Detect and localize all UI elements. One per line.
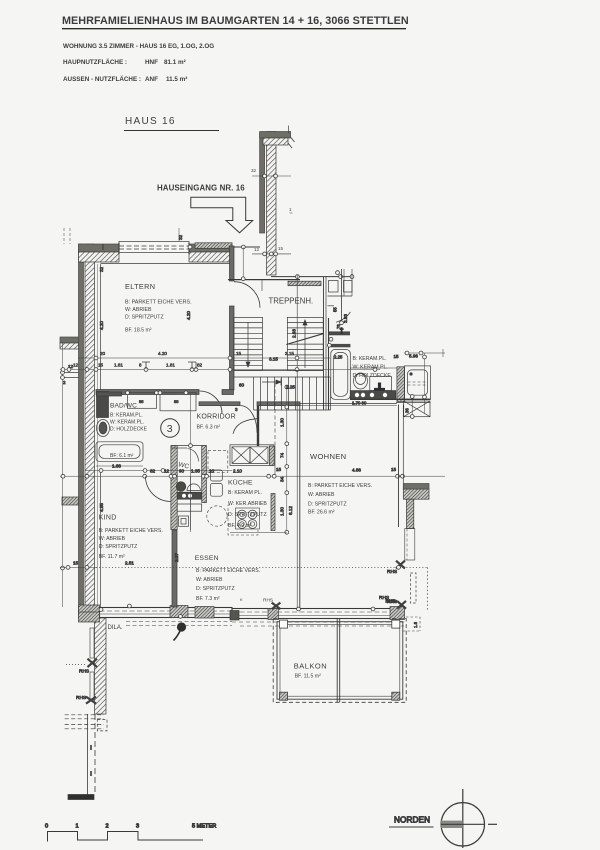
- svg-text:BF. 26.6 m²: BF. 26.6 m²: [308, 510, 335, 516]
- svg-text:BF. 11.5 m²: BF. 11.5 m²: [295, 674, 321, 680]
- svg-text:B: PARKETT EICHE VERS.: B: PARKETT EICHE VERS.: [99, 528, 163, 534]
- svg-text:W: ABRIEB: W: ABRIEB: [125, 307, 152, 313]
- svg-text:4.20: 4.20: [186, 311, 191, 320]
- svg-text:1: 1: [76, 824, 79, 830]
- svg-text:3: 3: [167, 423, 173, 435]
- svg-text:KIND: KIND: [99, 515, 117, 522]
- svg-text:RHS: RHS: [386, 599, 396, 605]
- svg-text:3: 3: [136, 824, 139, 830]
- svg-text:B: KERAM PL.: B: KERAM PL.: [228, 490, 262, 496]
- svg-text:12: 12: [164, 469, 170, 474]
- svg-text:1.6: 1.6: [413, 621, 418, 628]
- svg-text:ELTERN: ELTERN: [125, 282, 155, 291]
- svg-text:8: 8: [139, 363, 142, 368]
- svg-text:2.25: 2.25: [334, 355, 343, 360]
- svg-text:HAUPNUTZFLÄCHE :: HAUPNUTZFLÄCHE :: [63, 58, 127, 66]
- svg-text:RHS: RHS: [263, 598, 273, 604]
- svg-text:KÜCHE: KÜCHE: [228, 479, 253, 487]
- svg-text:1: 1: [289, 207, 292, 212]
- svg-text:WOHNUNG 3.5 ZIMMER - HAUS 16: WOHNUNG 3.5 ZIMMER - HAUS 16 EG, 1.OG, 2…: [63, 43, 214, 50]
- svg-text:DILA.: DILA.: [108, 625, 123, 631]
- svg-text:36: 36: [405, 408, 410, 413]
- svg-text:W: KER.ABRIEB: W: KER.ABRIEB: [228, 501, 267, 507]
- svg-text:TREPPENH.: TREPPENH.: [269, 297, 314, 306]
- svg-text:20: 20: [100, 351, 106, 356]
- svg-text:1.30: 1.30: [279, 507, 284, 516]
- svg-text:AUSSEN - NUTZFLÄCHE :: AUSSEN - NUTZFLÄCHE :: [63, 75, 141, 83]
- svg-text:D: SPRITZPUTZ: D: SPRITZPUTZ: [99, 544, 138, 550]
- svg-text:32: 32: [251, 168, 257, 173]
- svg-text:4.20: 4.20: [99, 321, 104, 330]
- svg-text:81.1 m²: 81.1 m²: [164, 59, 186, 66]
- svg-text:6.12: 6.12: [288, 506, 293, 515]
- svg-text:15: 15: [394, 354, 400, 359]
- svg-text:BF. 18.5 m²: BF. 18.5 m²: [125, 328, 152, 334]
- svg-text:4.20: 4.20: [158, 351, 167, 356]
- svg-text:D: SPRITZPUTZ: D: SPRITZPUTZ: [196, 586, 235, 592]
- svg-text:B: KERAM.PL.: B: KERAM.PL.: [110, 413, 143, 419]
- svg-text:2.25: 2.25: [286, 385, 295, 390]
- svg-text:ANF: ANF: [145, 76, 158, 83]
- svg-text:D: HOLZDECKE: D: HOLZDECKE: [110, 427, 148, 433]
- svg-text:1.35: 1.35: [191, 469, 200, 474]
- svg-text:D: SPRITZPUTZ: D: SPRITZPUTZ: [125, 315, 164, 321]
- svg-text:11.5 m²: 11.5 m²: [166, 76, 187, 83]
- svg-text:12: 12: [73, 363, 79, 368]
- svg-text:55: 55: [139, 399, 144, 404]
- svg-text:2.10: 2.10: [233, 469, 242, 474]
- svg-text:B: PARKETT EICHE VERS.: B: PARKETT EICHE VERS.: [308, 483, 372, 489]
- svg-text:D: SPRITZPUTZ: D: SPRITZPUTZ: [308, 502, 347, 508]
- svg-text:15: 15: [73, 561, 79, 566]
- svg-text:15: 15: [391, 467, 397, 472]
- svg-text:82: 82: [150, 469, 156, 474]
- svg-text:B: KERAM.PL.: B: KERAM.PL.: [353, 356, 387, 362]
- svg-text:MEHRFAMIELIENHAUS IM BAUMGARTE: MEHRFAMIELIENHAUS IM BAUMGARTEN 14 + 16,…: [62, 15, 409, 27]
- svg-text:WOHNEN: WOHNEN: [310, 452, 346, 461]
- svg-text:2: 2: [106, 824, 109, 830]
- svg-text:BF. 11.7 m²: BF. 11.7 m²: [99, 554, 125, 560]
- svg-text:RHS: RHS: [76, 695, 86, 701]
- svg-text:W: ABRIEB: W: ABRIEB: [196, 577, 223, 583]
- svg-text:82: 82: [197, 363, 203, 368]
- svg-text:15: 15: [98, 363, 104, 368]
- svg-text:4.55: 4.55: [99, 503, 104, 512]
- svg-text:55: 55: [333, 307, 338, 312]
- svg-text:55: 55: [174, 399, 179, 404]
- svg-text:15: 15: [278, 246, 284, 251]
- svg-text:1.30: 1.30: [279, 418, 284, 427]
- svg-text:HNF: HNF: [145, 59, 158, 66]
- svg-text:2: 2: [63, 380, 66, 385]
- svg-text:2.51: 2.51: [125, 561, 134, 566]
- svg-text:W: ABRIEB: W: ABRIEB: [99, 536, 126, 542]
- svg-text:KORRIDOR: KORRIDOR: [197, 414, 236, 421]
- svg-text:NORDEN: NORDEN: [394, 816, 430, 825]
- svg-text:HAUS 16: HAUS 16: [125, 116, 176, 127]
- svg-text:2.27: 2.27: [174, 553, 179, 562]
- svg-text:12: 12: [254, 247, 260, 252]
- svg-text:BF. 6.3 m²: BF. 6.3 m²: [197, 425, 221, 431]
- svg-text:1.81: 1.81: [166, 363, 175, 368]
- svg-text:RHS: RHS: [79, 669, 89, 675]
- svg-text:3.15: 3.15: [269, 357, 278, 362]
- svg-text:34: 34: [279, 476, 284, 482]
- svg-text:1.81: 1.81: [114, 363, 123, 368]
- svg-text:K: K: [240, 597, 243, 602]
- svg-text:15: 15: [276, 467, 282, 472]
- svg-text:B: PARKETT EICHE VERS.: B: PARKETT EICHE VERS.: [196, 568, 260, 574]
- svg-text:5.96: 5.96: [409, 354, 418, 359]
- svg-text:5 METER: 5 METER: [192, 824, 216, 830]
- svg-text:RHS: RHS: [387, 569, 397, 575]
- svg-text:4.86: 4.86: [352, 468, 361, 473]
- svg-text:ESSEN: ESSEN: [195, 555, 219, 562]
- svg-text:D: SPRITZPUTZ: D: SPRITZPUTZ: [228, 512, 267, 518]
- svg-text:BF. 7.3 m²: BF. 7.3 m²: [196, 596, 220, 602]
- svg-text:74: 74: [279, 452, 284, 458]
- svg-text:B: PARKETT EICHE VERS.: B: PARKETT EICHE VERS.: [125, 300, 192, 306]
- svg-text:32: 32: [99, 266, 104, 272]
- svg-text:3: 3: [235, 407, 238, 412]
- svg-text:0: 0: [45, 824, 48, 830]
- svg-text:BALKON: BALKON: [294, 662, 327, 671]
- svg-text:HAUSEINGANG NR. 16: HAUSEINGANG NR. 16: [157, 184, 245, 193]
- svg-text:3.93: 3.93: [343, 314, 348, 323]
- svg-text:W: ABRIEB: W: ABRIEB: [308, 492, 335, 498]
- svg-text:2.93: 2.93: [292, 329, 297, 338]
- svg-text:60: 60: [239, 383, 245, 388]
- svg-text:W: KERAM.PL.: W: KERAM.PL.: [110, 420, 144, 426]
- svg-text:W: KERAM.PL.: W: KERAM.PL.: [353, 365, 388, 371]
